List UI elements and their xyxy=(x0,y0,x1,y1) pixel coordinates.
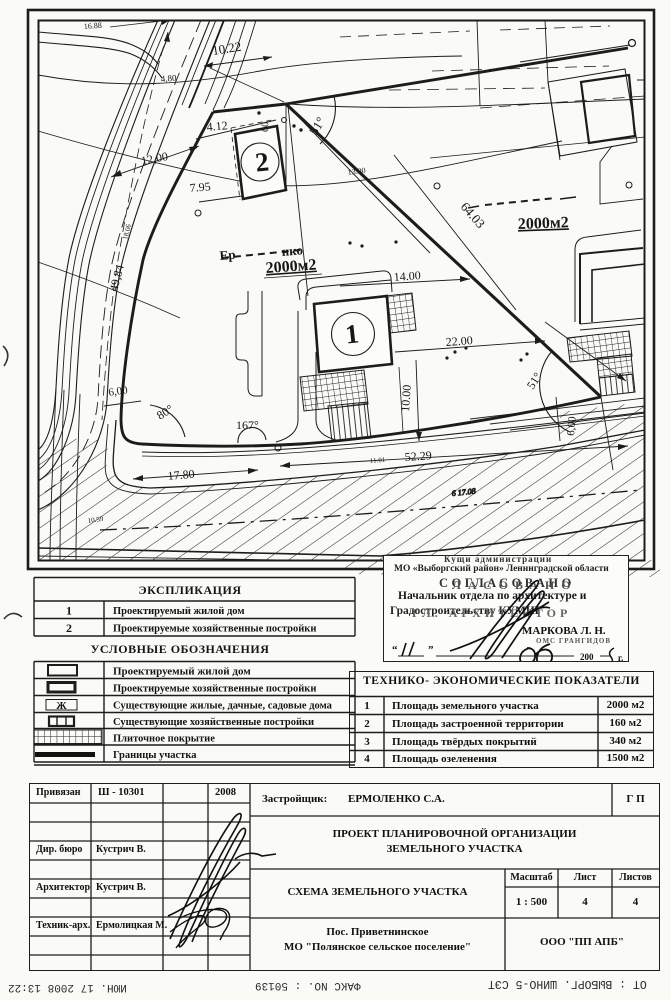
svg-text:Ер: Ер xyxy=(219,247,236,263)
svg-text:51°: 51° xyxy=(306,114,328,137)
svg-text:10.22: 10.22 xyxy=(211,39,242,58)
svg-text:Ж: Ж xyxy=(56,701,67,712)
svg-text:Существующие хозяйственные пос: Существующие хозяйственные постройки xyxy=(113,717,314,728)
svg-text:14.00: 14.00 xyxy=(393,268,421,284)
svg-text:УСЛОВНЫЕ ОБОЗНАЧЕНИЯ: УСЛОВНЫЕ ОБОЗНАЧЕНИЯ xyxy=(91,642,270,656)
svg-text:167°: 167° xyxy=(236,418,259,432)
svg-text:18.06: 18.06 xyxy=(121,223,133,241)
svg-text:Границы участка: Границы участка xyxy=(113,750,197,761)
svg-text:6,00: 6,00 xyxy=(108,384,129,399)
svg-text:2: 2 xyxy=(66,621,72,635)
svg-text:Плиточное покрытие: Плиточное покрытие xyxy=(113,734,215,745)
svg-text:22.00: 22.00 xyxy=(445,333,473,349)
svg-text:16.88: 16.88 xyxy=(84,21,103,31)
svg-text:ЭКСПЛИКАЦИЯ: ЭКСПЛИКАЦИЯ xyxy=(138,583,241,597)
svg-text:64.03: 64.03 xyxy=(458,199,489,231)
svg-text:49,84: 49,84 xyxy=(106,263,127,293)
svg-text:51°: 51° xyxy=(524,370,545,392)
svg-text:17.80: 17.80 xyxy=(167,467,195,483)
svg-text:2000м2: 2000м2 xyxy=(265,256,317,277)
svg-text:80°: 80° xyxy=(154,402,176,423)
svg-text:2000м2: 2000м2 xyxy=(518,214,569,233)
svg-text:4,80: 4,80 xyxy=(160,73,177,84)
svg-text:Существующие жилые, дачные, са: Существующие жилые, дачные, садовые дома xyxy=(113,701,333,712)
svg-text:1: 1 xyxy=(66,604,72,618)
svg-text:00: 00 xyxy=(260,122,271,132)
svg-text:нко: нко xyxy=(281,242,304,259)
svg-text:Проектируемые хозяйственные по: Проектируемые хозяйственные постройки xyxy=(113,624,316,635)
svg-text:7.95: 7.95 xyxy=(189,179,211,195)
svg-text:4.12: 4.12 xyxy=(206,118,228,134)
svg-text:6,00: 6,00 xyxy=(565,416,579,437)
svg-text:11.01: 11.01 xyxy=(370,456,387,465)
svg-text:10.00: 10.00 xyxy=(398,384,414,412)
svg-text:Проектируемый жилой дом: Проектируемый жилой дом xyxy=(113,666,251,678)
svg-text:Проектируемый жилой дом: Проектируемый жилой дом xyxy=(113,606,244,617)
svg-text:52.29: 52.29 xyxy=(404,448,432,464)
svg-text:Проектируемые хозяйственные по: Проектируемые хозяйственные постройки xyxy=(113,684,316,695)
